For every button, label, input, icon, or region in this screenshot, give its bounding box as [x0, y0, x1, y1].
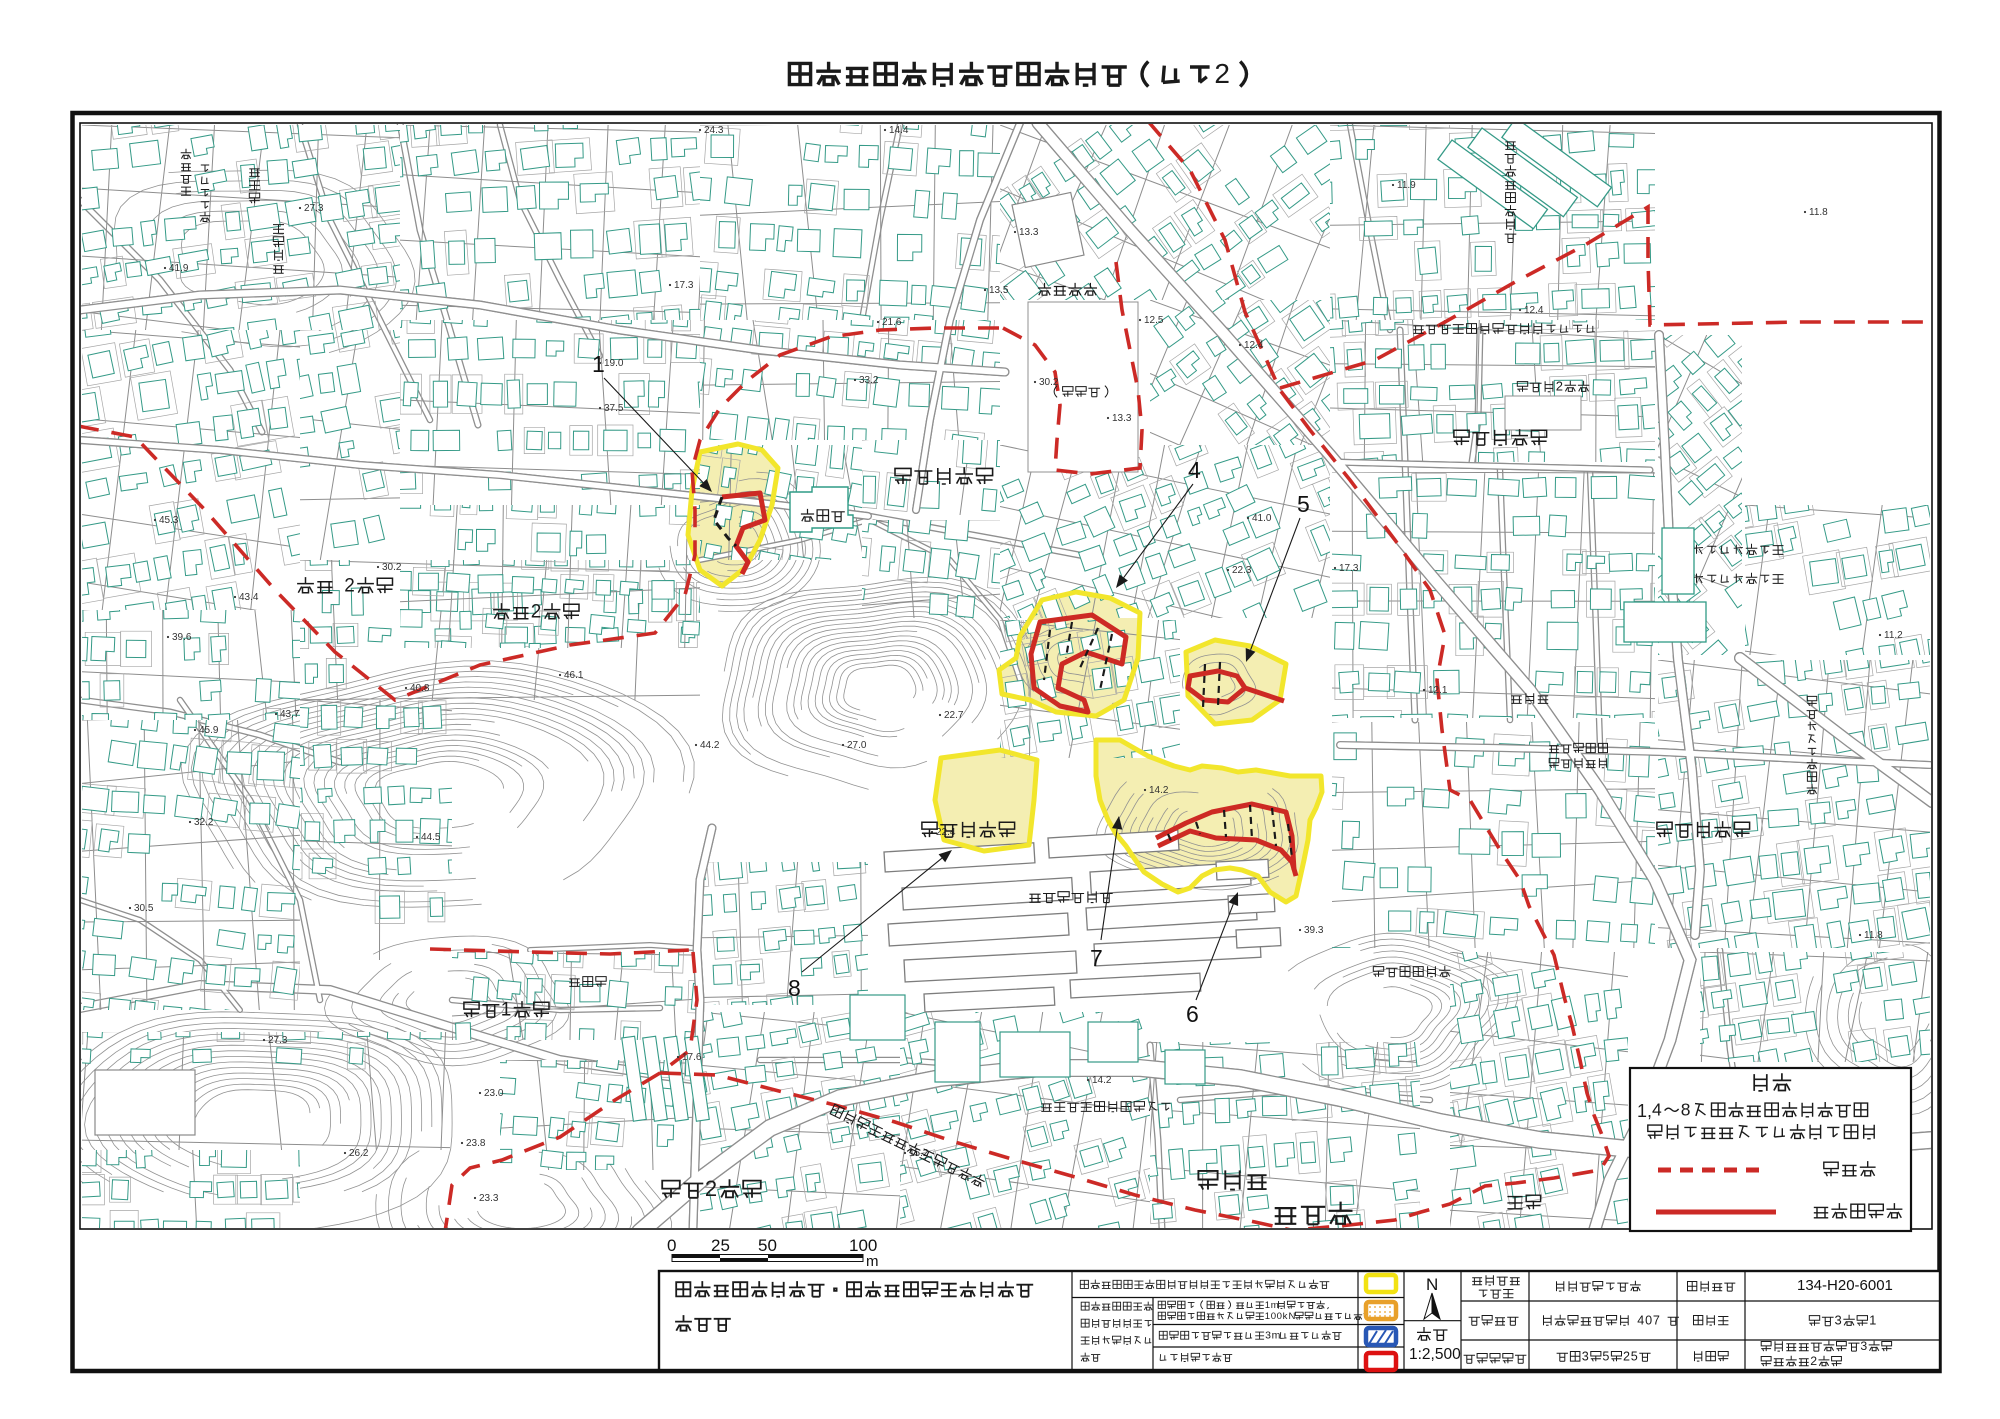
- svg-text:46.1: 46.1: [564, 670, 584, 681]
- svg-text:27.3: 27.3: [304, 203, 324, 214]
- svg-text:12.1: 12.1: [1428, 685, 1448, 696]
- svg-text:17.3: 17.3: [674, 280, 694, 291]
- svg-text:12.4: 12.4: [1244, 340, 1264, 351]
- svg-text:2: 2: [705, 1176, 717, 1201]
- svg-text:19.0: 19.0: [604, 358, 624, 369]
- svg-text:2: 2: [1623, 1349, 1630, 1363]
- svg-text:2: 2: [531, 602, 542, 623]
- svg-text:N: N: [1289, 1311, 1296, 1322]
- svg-text:4: 4: [1188, 457, 1201, 483]
- svg-text:43.7: 43.7: [280, 709, 300, 720]
- svg-text:23.3: 23.3: [479, 1193, 499, 1204]
- svg-text:30.5: 30.5: [134, 903, 154, 914]
- svg-text:2: 2: [1214, 58, 1230, 89]
- svg-text:1,: 1,: [1637, 1101, 1652, 1121]
- svg-text:12.5: 12.5: [1144, 315, 1164, 326]
- svg-text:0: 0: [1271, 1311, 1276, 1322]
- svg-text:41.0: 41.0: [1252, 513, 1272, 524]
- svg-text:2: 2: [344, 576, 355, 597]
- svg-text:50: 50: [758, 1236, 777, 1255]
- svg-text:0: 0: [1277, 1311, 1282, 1322]
- svg-text:30.2: 30.2: [382, 562, 402, 573]
- svg-text:37.5: 37.5: [604, 403, 624, 414]
- svg-text:22.3: 22.3: [1232, 565, 1252, 576]
- svg-text:8: 8: [788, 975, 801, 1001]
- svg-text:45.9: 45.9: [199, 725, 219, 736]
- svg-text:23.8: 23.8: [466, 1138, 486, 1149]
- svg-text:45.3: 45.3: [159, 515, 179, 526]
- svg-text:1: 1: [1869, 1313, 1876, 1328]
- svg-text:43.4: 43.4: [239, 592, 259, 603]
- svg-text:26.2: 26.2: [349, 1148, 369, 1159]
- svg-text:4: 4: [1652, 1099, 1662, 1119]
- svg-text:11.8: 11.8: [1864, 930, 1883, 941]
- svg-text:11.9: 11.9: [1397, 180, 1416, 191]
- svg-text:17.6: 17.6: [682, 1052, 702, 1063]
- svg-text:7: 7: [1090, 945, 1103, 971]
- svg-text:2: 2: [1810, 1354, 1817, 1368]
- svg-text:39.6: 39.6: [172, 632, 192, 643]
- svg-text:m: m: [1271, 1300, 1279, 1311]
- svg-text:22.7: 22.7: [944, 710, 964, 721]
- svg-text:11.8: 11.8: [1809, 207, 1828, 218]
- svg-text:1:2,500: 1:2,500: [1409, 1346, 1461, 1363]
- svg-text:27.3: 27.3: [268, 1035, 288, 1046]
- svg-text:k: k: [1283, 1311, 1288, 1322]
- svg-text:0: 0: [1645, 1313, 1652, 1327]
- svg-text:14.2: 14.2: [1092, 1075, 1112, 1086]
- svg-text:3: 3: [1860, 1339, 1867, 1353]
- svg-text:21.6: 21.6: [882, 317, 902, 328]
- svg-text:27.0: 27.0: [847, 740, 867, 751]
- svg-text:m: m: [1272, 1330, 1281, 1342]
- svg-text:4: 4: [1637, 1313, 1644, 1327]
- svg-text:1: 1: [501, 1000, 512, 1021]
- svg-text:24.3: 24.3: [704, 125, 724, 136]
- svg-text:8: 8: [1681, 1099, 1691, 1119]
- svg-text:2: 2: [1556, 379, 1563, 394]
- svg-text:14.4: 14.4: [889, 125, 909, 136]
- svg-text:41.9: 41.9: [169, 263, 189, 274]
- svg-text:1: 1: [1265, 1300, 1270, 1311]
- svg-text:44.2: 44.2: [700, 740, 720, 751]
- svg-text:1: 1: [1265, 1311, 1270, 1322]
- svg-text:13.3: 13.3: [1112, 413, 1132, 424]
- svg-text:5: 5: [1631, 1349, 1638, 1363]
- svg-text:25: 25: [711, 1236, 730, 1255]
- svg-text:23.0: 23.0: [484, 1088, 504, 1099]
- svg-text:33.2: 33.2: [859, 375, 879, 386]
- svg-text:N: N: [1426, 1275, 1438, 1294]
- svg-text:13.3: 13.3: [1019, 227, 1039, 238]
- svg-text:7: 7: [1653, 1313, 1660, 1327]
- svg-text:6: 6: [1186, 1001, 1199, 1027]
- svg-text:5: 5: [1602, 1349, 1609, 1363]
- svg-text:39.3: 39.3: [1304, 925, 1324, 936]
- svg-text:12.4: 12.4: [1524, 305, 1544, 316]
- svg-text:5: 5: [1297, 491, 1310, 517]
- svg-text:14.2: 14.2: [1149, 785, 1169, 796]
- svg-text:40.8: 40.8: [410, 683, 430, 694]
- svg-text:11.2: 11.2: [1884, 630, 1903, 641]
- svg-text:32.2: 32.2: [194, 817, 214, 828]
- svg-text:m: m: [866, 1253, 879, 1270]
- svg-text:3: 3: [1265, 1330, 1271, 1342]
- svg-text:3: 3: [1582, 1349, 1589, 1363]
- svg-text:44.5: 44.5: [421, 832, 441, 843]
- svg-text:3: 3: [1835, 1313, 1842, 1328]
- svg-text:0: 0: [667, 1236, 676, 1255]
- svg-text:134-H20-6001: 134-H20-6001: [1797, 1277, 1893, 1294]
- svg-text:13.5: 13.5: [989, 285, 1009, 296]
- svg-text:1: 1: [592, 351, 605, 377]
- svg-text:17.3: 17.3: [1339, 563, 1359, 574]
